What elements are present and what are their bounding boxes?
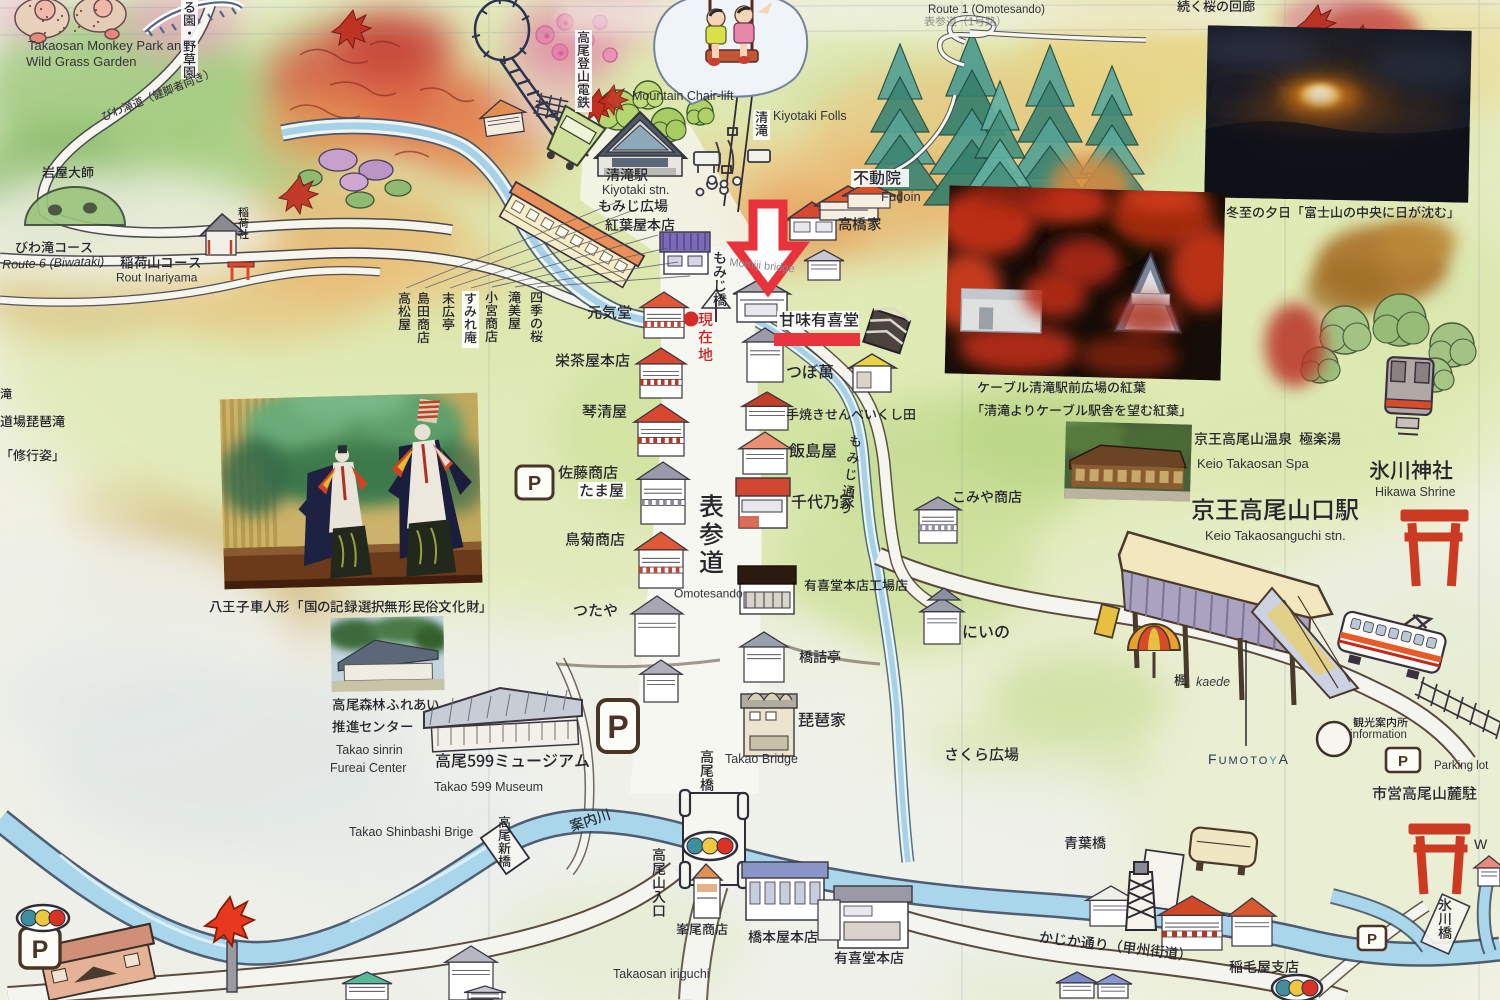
svg-text:Takao sinrin: Takao sinrin xyxy=(336,743,403,757)
svg-text:Takao Bridge: Takao Bridge xyxy=(725,752,798,766)
svg-text:Rout Inariyama: Rout Inariyama xyxy=(116,270,198,284)
svg-text:Takaosan iriguchi: Takaosan iriguchi xyxy=(613,967,710,981)
svg-text:Parking lot: Parking lot xyxy=(1434,760,1489,772)
svg-text:W: W xyxy=(1474,836,1488,852)
svg-text:Mountain Chair-lift: Mountain Chair-lift xyxy=(632,89,734,103)
svg-text:Route 1 (Omotesando): Route 1 (Omotesando) xyxy=(928,4,1045,16)
svg-text:Takao 599 Museum: Takao 599 Museum xyxy=(434,780,543,794)
svg-text:Keio Takaosanguchi stn.: Keio Takaosanguchi stn. xyxy=(1205,528,1346,543)
svg-text:Kiyotaki stn.: Kiyotaki stn. xyxy=(602,183,669,197)
svg-text:Omotesando: Omotesando xyxy=(674,586,743,600)
svg-text:kaede: kaede xyxy=(1196,675,1230,689)
svg-text:Takaosan Monkey Park and: Takaosan Monkey Park and xyxy=(28,38,188,53)
svg-text:Takao Shinbashi Brige: Takao Shinbashi Brige xyxy=(349,825,473,839)
svg-text:Fureai Center: Fureai Center xyxy=(330,761,406,775)
svg-text:P: P xyxy=(1367,931,1377,948)
svg-text:Fudoin: Fudoin xyxy=(881,189,921,204)
svg-text:P: P xyxy=(1398,753,1408,770)
svg-text:P: P xyxy=(607,709,628,745)
svg-text:P: P xyxy=(32,936,49,964)
svg-text:information: information xyxy=(1350,729,1407,741)
svg-text:Keio Takaosan Spa: Keio Takaosan Spa xyxy=(1197,456,1310,471)
svg-text:Kiyotaki Folls: Kiyotaki Folls xyxy=(773,109,847,123)
svg-text:Hikawa Shrine: Hikawa Shrine xyxy=(1375,485,1456,499)
svg-text:Wild Grass Garden: Wild Grass Garden xyxy=(26,54,137,69)
svg-text:P: P xyxy=(528,473,541,495)
